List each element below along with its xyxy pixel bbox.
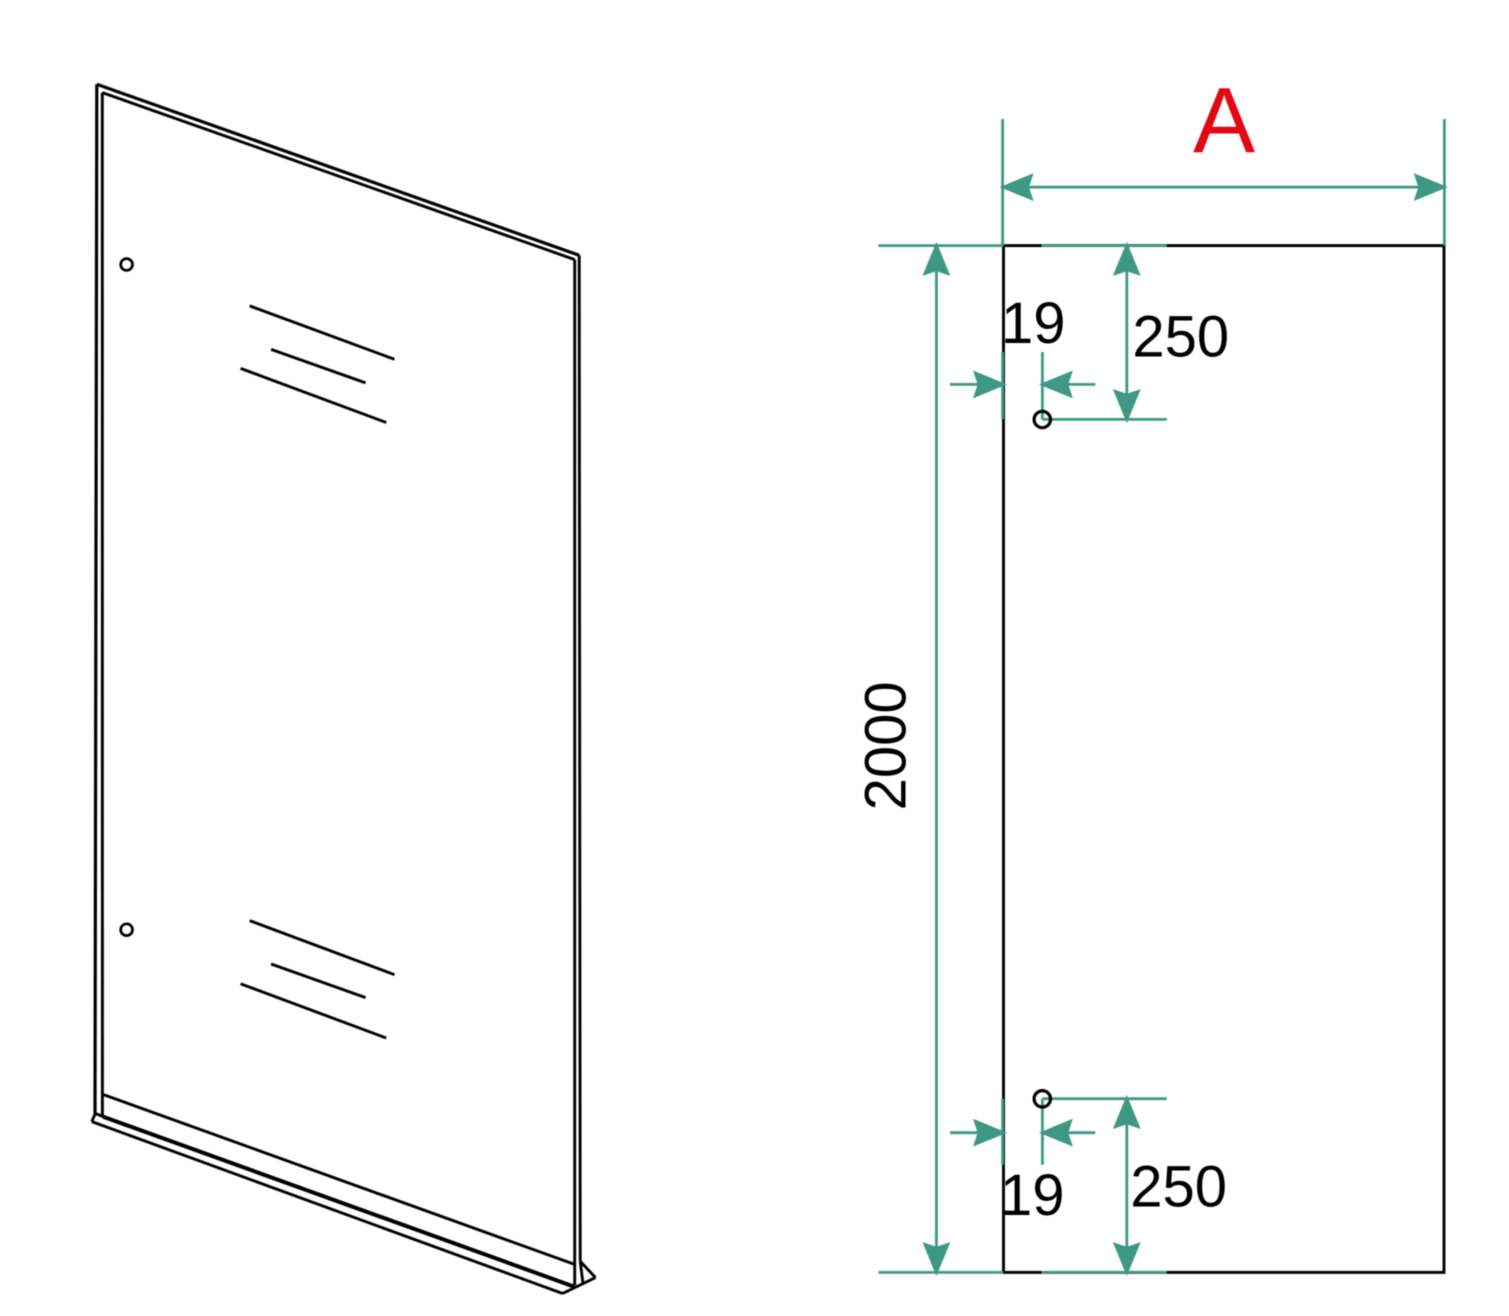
svg-text:A: A bbox=[1193, 68, 1255, 172]
svg-text:250: 250 bbox=[1132, 305, 1229, 370]
svg-text:19: 19 bbox=[1000, 1163, 1065, 1228]
svg-text:250: 250 bbox=[1130, 1154, 1227, 1219]
svg-text:2000: 2000 bbox=[854, 681, 919, 810]
svg-text:19: 19 bbox=[1001, 291, 1066, 356]
